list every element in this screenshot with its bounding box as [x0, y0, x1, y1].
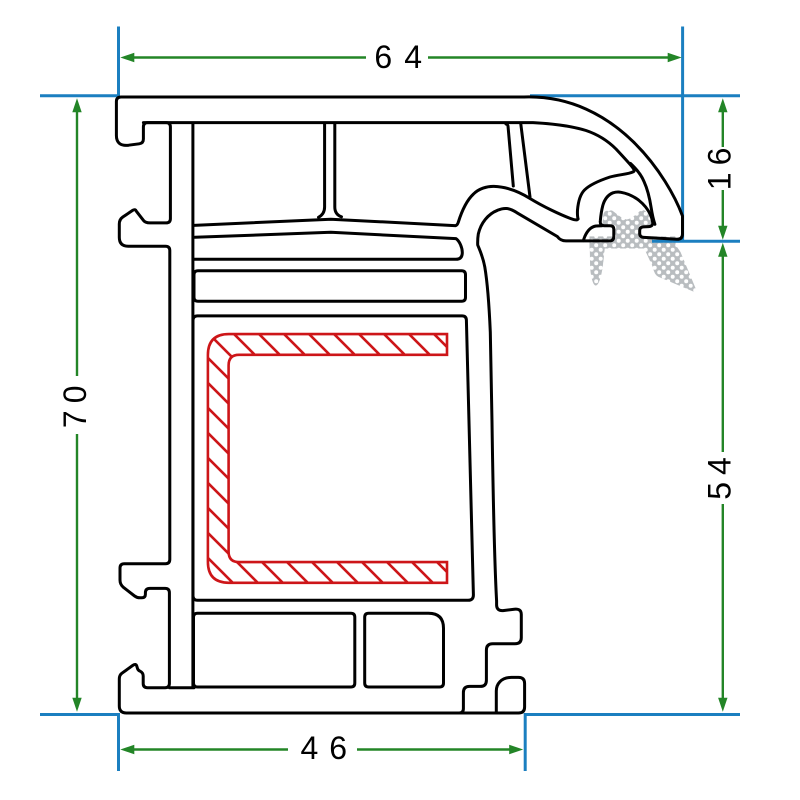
- svg-text:46: 46: [301, 730, 359, 766]
- svg-text:70: 70: [57, 379, 93, 429]
- svg-text:64: 64: [374, 39, 434, 75]
- svg-text:16: 16: [702, 141, 738, 191]
- svg-text:54: 54: [702, 450, 738, 500]
